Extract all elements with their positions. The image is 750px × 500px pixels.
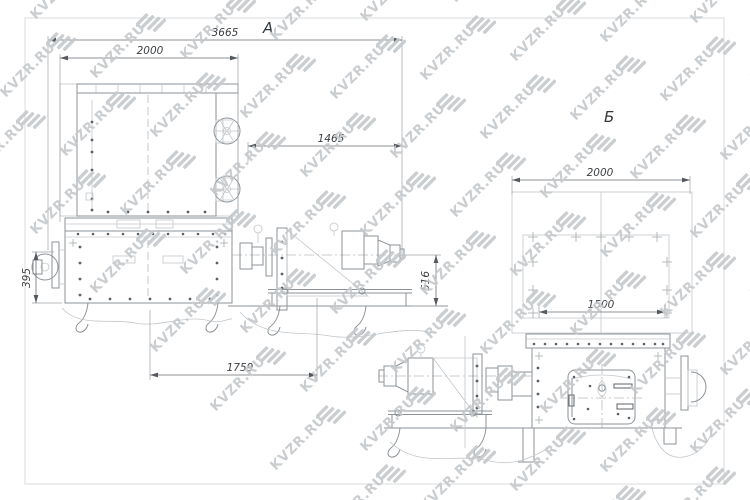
fan-top-icon (214, 118, 240, 144)
dim-overall-width-b: 2000 (587, 167, 614, 179)
dim-overall-width-a: 3665 (212, 27, 239, 39)
dim-base-span-a: 1759 (227, 362, 254, 374)
dimension-2000-b: 2000 (512, 167, 690, 194)
dim-pulley-height: 395 (21, 268, 33, 288)
inspection-door (560, 364, 643, 430)
fan-bottom-icon (214, 176, 240, 202)
dimension-1500: 1500 (539, 299, 665, 318)
dimension-1465: 1465 (248, 133, 402, 162)
belt-guard (287, 230, 368, 296)
view-a: А (21, 19, 448, 380)
dim-motor-height: 516 (420, 271, 432, 291)
dim-motor-offset: 1465 (318, 133, 345, 145)
motor-body (342, 231, 364, 269)
view-label-b: Б (604, 108, 614, 126)
motor-bracket (277, 228, 287, 310)
technical-drawing: А (0, 0, 750, 500)
dim-body-width-a: 2000 (137, 45, 164, 57)
drawing-page: А (0, 0, 750, 500)
bearing-housing (691, 372, 706, 402)
door-latch-bottom (617, 404, 633, 409)
door-latch-top (614, 384, 632, 388)
dimension-1759: 1759 (150, 298, 317, 380)
dimension-516: 516 (404, 255, 441, 306)
dimension-3665: 3665 (48, 27, 402, 258)
belt-guard-b (433, 358, 477, 417)
view-label-a: А (262, 19, 273, 37)
dimension-2000-a: 2000 (60, 45, 238, 222)
dim-base-span-b: 1500 (588, 299, 615, 311)
